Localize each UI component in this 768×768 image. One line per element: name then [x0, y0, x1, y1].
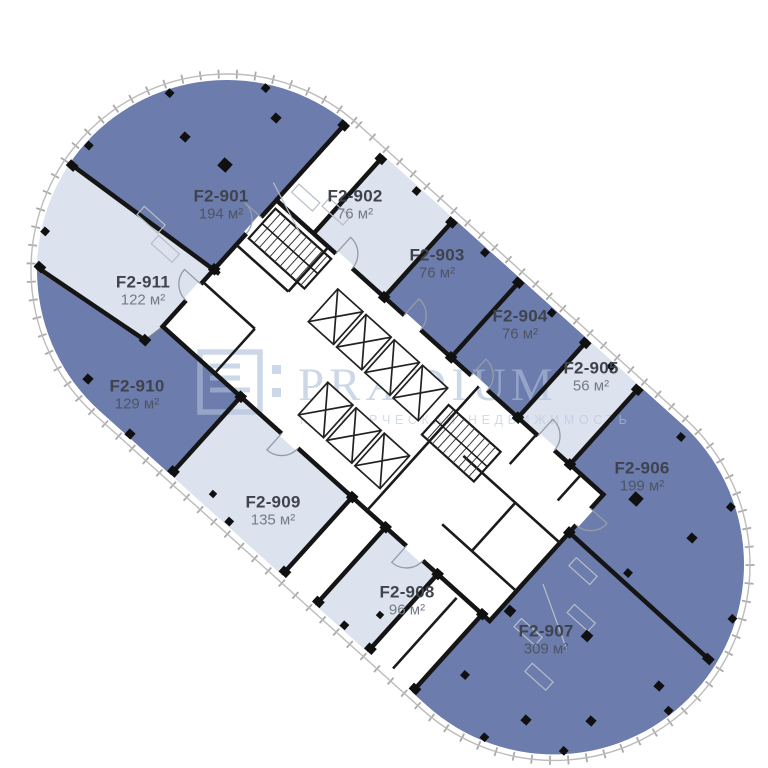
floor-plan-svg: PRÆDIUM КОММЕРЧЕСКАЯ НЕДВИЖИМОСТЬ: [0, 0, 768, 768]
floor-plan-stage: PRÆDIUM КОММЕРЧЕСКАЯ НЕДВИЖИМОСТЬ: [0, 0, 768, 768]
